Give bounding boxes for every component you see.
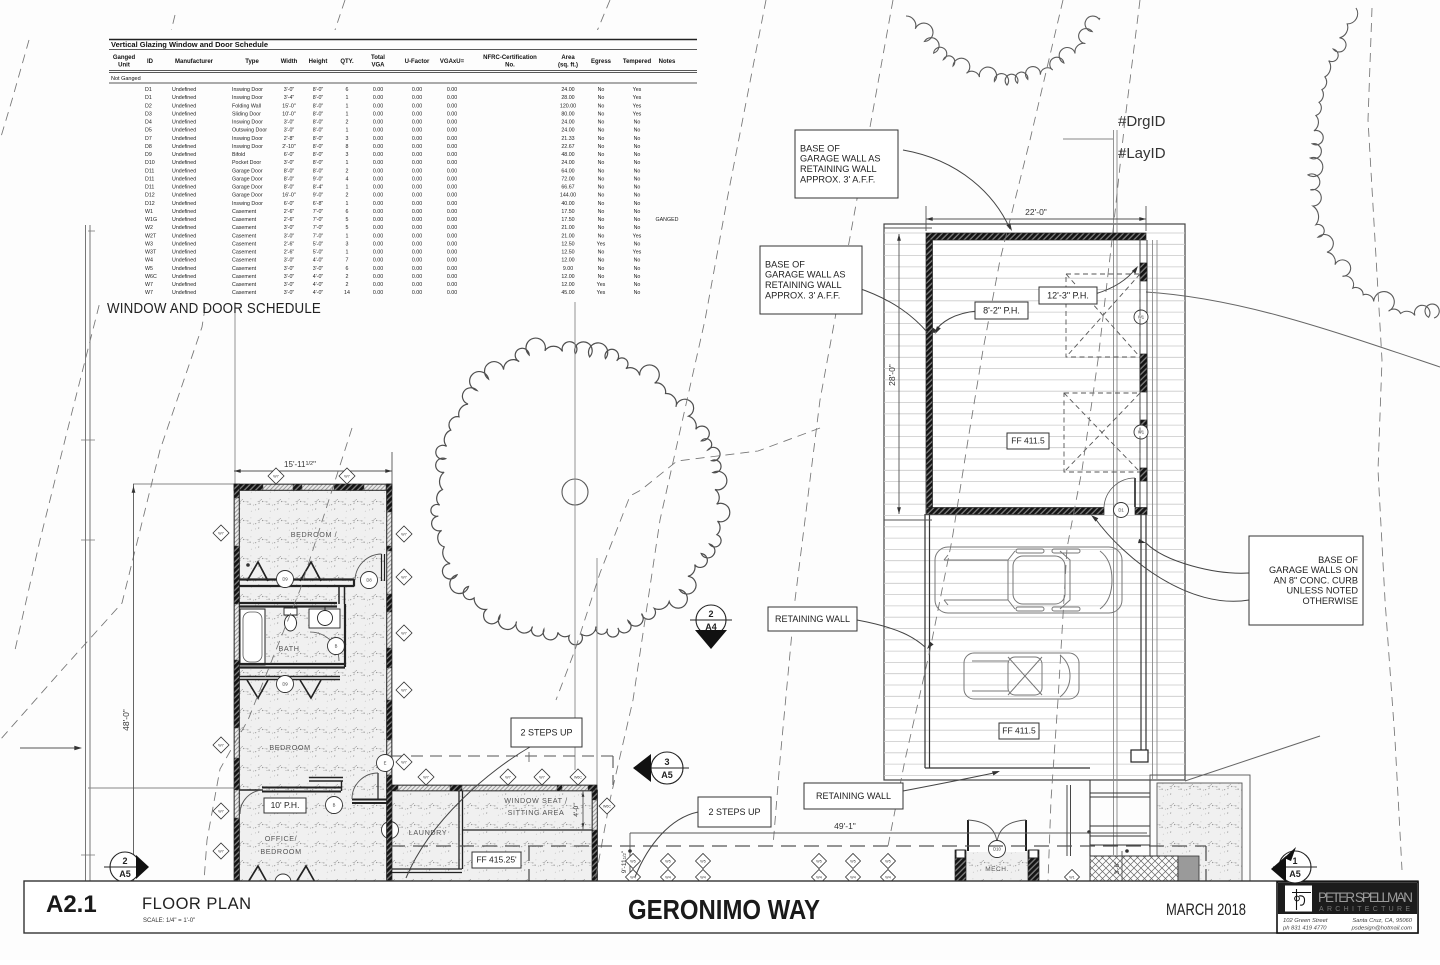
svg-text:Inswing Door: Inswing Door: [232, 87, 263, 93]
svg-text:120.00: 120.00: [560, 103, 576, 109]
svg-text:0.00: 0.00: [373, 290, 383, 296]
svg-text:BASE OF: BASE OF: [765, 259, 805, 269]
svg-text:0.00: 0.00: [447, 152, 457, 158]
svg-text:B: B: [333, 803, 336, 808]
svg-text:QTY.: QTY.: [340, 59, 354, 65]
svg-text:No: No: [598, 120, 605, 126]
svg-text:0.00: 0.00: [373, 282, 383, 288]
svg-text:7'-0": 7'-0": [313, 233, 324, 239]
svg-text:OTHERWISE: OTHERWISE: [1303, 596, 1358, 606]
svg-text:Casement: Casement: [232, 258, 257, 264]
svg-text:0.00: 0.00: [373, 136, 383, 142]
svg-text:48.00: 48.00: [561, 152, 574, 158]
svg-text:ph 831 419 4770: ph 831 419 4770: [1282, 926, 1327, 932]
svg-text:D3: D3: [145, 111, 152, 117]
svg-text:12.50: 12.50: [561, 250, 574, 256]
svg-text:WINDOW AND DOOR SCHEDULE: WINDOW AND DOOR SCHEDULE: [107, 301, 321, 317]
svg-text:0.00: 0.00: [412, 274, 422, 280]
svg-text:No: No: [598, 266, 605, 272]
svg-text:0.00: 0.00: [412, 176, 422, 182]
svg-text:Yes: Yes: [633, 233, 642, 239]
svg-text:0.00: 0.00: [412, 193, 422, 199]
svg-text:W7: W7: [344, 474, 349, 478]
svg-text:W7: W7: [539, 775, 544, 779]
svg-text:W7: W7: [401, 532, 406, 536]
svg-text:Height: Height: [309, 59, 328, 65]
svg-text:144.00: 144.00: [560, 193, 576, 199]
svg-text:OFFICE/: OFFICE/: [265, 834, 298, 843]
svg-text:ID: ID: [147, 59, 154, 65]
svg-text:No: No: [598, 185, 605, 191]
svg-text:Undefined: Undefined: [172, 201, 196, 207]
svg-text:0.00: 0.00: [447, 128, 457, 134]
svg-text:Type: Type: [245, 59, 259, 65]
svg-text:8'-0": 8'-0": [313, 136, 324, 142]
svg-text:No: No: [634, 258, 641, 264]
svg-text:No: No: [598, 111, 605, 117]
svg-text:GARAGE WALL AS: GARAGE WALL AS: [765, 270, 846, 280]
svg-text:Undefined: Undefined: [172, 209, 196, 215]
svg-text:No: No: [634, 152, 641, 158]
svg-text:W4: W4: [885, 875, 890, 879]
svg-text:Undefined: Undefined: [172, 168, 196, 174]
svg-text:0.00: 0.00: [447, 87, 457, 93]
svg-text:Unit: Unit: [118, 63, 130, 69]
svg-text:No: No: [598, 87, 605, 93]
svg-text:17.50: 17.50: [561, 209, 574, 215]
svg-text:Folding Wall: Folding Wall: [232, 103, 261, 109]
svg-text:64.00: 64.00: [561, 168, 574, 174]
svg-text:0.00: 0.00: [373, 274, 383, 280]
svg-text:0.00: 0.00: [373, 201, 383, 207]
svg-text:0.00: 0.00: [447, 274, 457, 280]
svg-text:No: No: [634, 120, 641, 126]
svg-text:W1: W1: [1069, 875, 1074, 879]
svg-text:W5: W5: [665, 859, 670, 863]
svg-text:Undefined: Undefined: [172, 290, 196, 296]
svg-text:D11: D11: [145, 185, 154, 191]
svg-text:17.50: 17.50: [561, 217, 574, 223]
svg-text:W4: W4: [665, 875, 670, 879]
svg-text:No: No: [598, 209, 605, 215]
svg-text:2: 2: [346, 282, 349, 288]
svg-text:Yes: Yes: [633, 111, 642, 117]
svg-text:No: No: [634, 160, 641, 166]
svg-text:Yes: Yes: [633, 95, 642, 101]
svg-text:FLOOR PLAN: FLOOR PLAN: [142, 895, 252, 913]
svg-text:PETER SPELLMAN: PETER SPELLMAN: [1318, 890, 1413, 905]
svg-text:0.00: 0.00: [412, 266, 422, 272]
svg-text:Undefined: Undefined: [172, 144, 196, 150]
svg-text:0.00: 0.00: [447, 209, 457, 215]
svg-text:1: 1: [346, 160, 349, 166]
svg-text:0.00: 0.00: [447, 250, 457, 256]
svg-text:24.00: 24.00: [561, 160, 574, 166]
svg-text:D4: D4: [145, 120, 152, 126]
svg-text:3: 3: [346, 152, 349, 158]
svg-text:3'-0": 3'-0": [284, 258, 295, 264]
svg-text:SCALE: 1/4" = 1'-0": SCALE: 1/4" = 1'-0": [143, 918, 195, 924]
svg-text:15'-0": 15'-0": [282, 103, 296, 109]
svg-text:GARAGE WALL AS: GARAGE WALL AS: [800, 154, 881, 164]
svg-text:W7: W7: [401, 760, 406, 764]
svg-text:Tempered: Tempered: [623, 59, 652, 65]
svg-text:49'-1": 49'-1": [834, 821, 856, 831]
svg-text:Casement: Casement: [232, 209, 257, 215]
svg-text:W4: W4: [850, 875, 855, 879]
svg-text:0.00: 0.00: [412, 217, 422, 223]
svg-text:Undefined: Undefined: [172, 152, 196, 158]
svg-text:APPROX. 3' A.F.F.: APPROX. 3' A.F.F.: [765, 290, 840, 300]
svg-text:MECH.: MECH.: [985, 866, 1008, 873]
svg-text:Undefined: Undefined: [172, 87, 196, 93]
svg-text:8'-0": 8'-0": [284, 185, 295, 191]
svg-text:psdesign@hotmail.com: psdesign@hotmail.com: [1351, 926, 1413, 932]
svg-text:4'-0": 4'-0": [573, 803, 580, 817]
svg-text:W7: W7: [505, 775, 510, 779]
svg-text:0.00: 0.00: [373, 103, 383, 109]
svg-text:Yes: Yes: [597, 282, 606, 288]
svg-text:Undefined: Undefined: [172, 193, 196, 199]
svg-text:D9: D9: [145, 152, 152, 158]
svg-text:No: No: [634, 136, 641, 142]
svg-text:No: No: [598, 95, 605, 101]
svg-text:Casement: Casement: [232, 250, 257, 256]
svg-text:0.00: 0.00: [412, 152, 422, 158]
svg-text:5'-0": 5'-0": [313, 242, 324, 248]
svg-text:Undefined: Undefined: [172, 128, 196, 134]
svg-text:0.00: 0.00: [373, 168, 383, 174]
svg-text:2 STEPS UP: 2 STEPS UP: [708, 807, 760, 817]
svg-text:9'-0": 9'-0": [313, 193, 324, 199]
svg-text:0.00: 0.00: [412, 87, 422, 93]
svg-text:No: No: [634, 290, 641, 296]
svg-text:12.00: 12.00: [561, 258, 574, 264]
svg-text:W2T: W2T: [145, 233, 157, 239]
svg-text:Santa Cruz, CA, 95060: Santa Cruz, CA, 95060: [1352, 918, 1412, 924]
svg-text:Casement: Casement: [232, 274, 257, 280]
svg-text:No: No: [634, 209, 641, 215]
svg-text:Casement: Casement: [232, 242, 257, 248]
svg-text:0.00: 0.00: [373, 144, 383, 150]
svg-text:3'-0": 3'-0": [284, 290, 295, 296]
svg-text:0.00: 0.00: [412, 95, 422, 101]
svg-text:No: No: [634, 217, 641, 223]
svg-text:Undefined: Undefined: [172, 176, 196, 182]
svg-text:W4: W4: [145, 258, 153, 264]
svg-text:Undefined: Undefined: [172, 233, 196, 239]
svg-text:Width: Width: [281, 59, 298, 65]
svg-text:Undefined: Undefined: [172, 95, 196, 101]
svg-text:3'-0": 3'-0": [284, 282, 295, 288]
svg-text:0.00: 0.00: [373, 95, 383, 101]
svg-text:24.00: 24.00: [561, 87, 574, 93]
svg-text:No: No: [598, 258, 605, 264]
svg-text:0.00: 0.00: [412, 225, 422, 231]
svg-text:2'-6": 2'-6": [284, 242, 295, 248]
svg-text:0.00: 0.00: [412, 111, 422, 117]
svg-text:0.00: 0.00: [447, 242, 457, 248]
svg-text:8'-0": 8'-0": [284, 176, 295, 182]
svg-text:Ganged: Ganged: [113, 55, 136, 61]
svg-text:D1: D1: [1118, 508, 1124, 513]
svg-text:45.00: 45.00: [561, 290, 574, 296]
svg-text:A5: A5: [1289, 869, 1301, 879]
svg-text:2'-6": 2'-6": [284, 250, 295, 256]
svg-text:D7: D7: [145, 136, 152, 142]
svg-text:GERONIMO WAY: GERONIMO WAY: [628, 894, 820, 925]
svg-text:FF 411.5: FF 411.5: [1011, 436, 1045, 446]
svg-text:B: B: [335, 644, 338, 649]
svg-text:0.00: 0.00: [447, 282, 457, 288]
svg-text:Undefined: Undefined: [172, 266, 196, 272]
svg-text:W7: W7: [401, 688, 406, 692]
svg-text:VGAxU=: VGAxU=: [440, 59, 465, 65]
svg-text:0.00: 0.00: [447, 168, 457, 174]
svg-text:4'-0": 4'-0": [313, 282, 324, 288]
svg-text:3: 3: [664, 757, 669, 767]
svg-text:Casement: Casement: [232, 266, 257, 272]
svg-text:W1G: W1G: [145, 217, 157, 223]
svg-text:4'-0": 4'-0": [313, 274, 324, 280]
svg-text:8'-2" P.H.: 8'-2" P.H.: [983, 305, 1020, 315]
svg-text:W4: W4: [630, 875, 635, 879]
svg-text:0.00: 0.00: [373, 233, 383, 239]
svg-text:No: No: [634, 193, 641, 199]
svg-text:9'-0": 9'-0": [313, 176, 324, 182]
svg-text:3'-0": 3'-0": [284, 160, 295, 166]
svg-text:3'-0": 3'-0": [284, 120, 295, 126]
svg-text:5: 5: [346, 217, 349, 223]
svg-text:3: 3: [346, 136, 349, 142]
svg-text:Inswing Door: Inswing Door: [232, 201, 263, 207]
svg-text:W7: W7: [218, 743, 223, 747]
svg-text:0.00: 0.00: [447, 160, 457, 166]
svg-text:Area: Area: [561, 55, 575, 61]
svg-text:0.00: 0.00: [373, 128, 383, 134]
svg-text:0.00: 0.00: [412, 185, 422, 191]
svg-text:80.00: 80.00: [561, 111, 574, 117]
svg-text:7'-0": 7'-0": [313, 209, 324, 215]
svg-text:No: No: [634, 201, 641, 207]
svg-text:GARAGE WALLS ON: GARAGE WALLS ON: [1269, 565, 1358, 575]
svg-text:MARCH 2018: MARCH 2018: [1166, 901, 1246, 919]
svg-text:No: No: [598, 201, 605, 207]
svg-text:2'-6": 2'-6": [284, 217, 295, 223]
svg-text:W5: W5: [700, 859, 705, 863]
svg-text:No: No: [598, 152, 605, 158]
svg-text:Inswing Door: Inswing Door: [232, 95, 263, 101]
svg-text:0.00: 0.00: [373, 160, 383, 166]
svg-text:8'-0": 8'-0": [313, 144, 324, 150]
svg-text:Undefined: Undefined: [172, 136, 196, 142]
svg-text:W5: W5: [850, 859, 855, 863]
svg-text:0.00: 0.00: [447, 266, 457, 272]
svg-text:Undefined: Undefined: [172, 282, 196, 288]
svg-text:0.00: 0.00: [373, 209, 383, 215]
svg-text:Yes: Yes: [597, 242, 606, 248]
svg-text:Yes: Yes: [633, 87, 642, 93]
svg-text:8'-0": 8'-0": [313, 168, 324, 174]
svg-text:Pocket Door: Pocket Door: [232, 160, 261, 166]
svg-text:0.00: 0.00: [412, 250, 422, 256]
svg-text:7'-0": 7'-0": [313, 217, 324, 223]
svg-text:Undefined: Undefined: [172, 120, 196, 126]
svg-text:0.00: 0.00: [373, 152, 383, 158]
svg-text:(sq. ft.): (sq. ft.): [558, 63, 578, 69]
svg-text:Sliding Door: Sliding Door: [232, 111, 261, 117]
svg-text:BATH: BATH: [278, 644, 299, 653]
svg-text:No: No: [598, 136, 605, 142]
svg-text:0.00: 0.00: [447, 225, 457, 231]
svg-text:D1: D1: [145, 95, 152, 101]
svg-text:Casement: Casement: [232, 282, 257, 288]
svg-text:No: No: [634, 225, 641, 231]
svg-text:GANGED: GANGED: [656, 217, 679, 223]
svg-text:40.00: 40.00: [561, 201, 574, 207]
svg-text:8'-0": 8'-0": [313, 95, 324, 101]
svg-text:0.00: 0.00: [447, 258, 457, 264]
svg-text:Total: Total: [371, 55, 385, 61]
svg-text:W7: W7: [218, 849, 223, 853]
svg-text:No: No: [598, 160, 605, 166]
svg-text:Undefined: Undefined: [172, 217, 196, 223]
svg-text:28.00: 28.00: [561, 95, 574, 101]
svg-text:D9: D9: [282, 682, 288, 687]
svg-text:LAUNDRY: LAUNDRY: [409, 828, 447, 837]
svg-text:Garage Door: Garage Door: [232, 185, 263, 191]
svg-text:No: No: [598, 250, 605, 256]
svg-text:0.00: 0.00: [412, 103, 422, 109]
svg-text:1: 1: [346, 128, 349, 134]
svg-text:7'-0": 7'-0": [313, 225, 324, 231]
svg-text:0.00: 0.00: [412, 128, 422, 134]
svg-text:48'-0": 48'-0": [121, 709, 131, 731]
svg-text:A2.1: A2.1: [46, 891, 97, 918]
svg-text:0.00: 0.00: [373, 242, 383, 248]
svg-text:3'-0": 3'-0": [284, 87, 295, 93]
svg-text:0.00: 0.00: [447, 136, 457, 142]
svg-text:No: No: [634, 144, 641, 150]
svg-text:0.00: 0.00: [447, 193, 457, 199]
svg-text:8'-0": 8'-0": [313, 128, 324, 134]
svg-text:12.50: 12.50: [561, 242, 574, 248]
svg-text:No: No: [634, 168, 641, 174]
svg-text:BEDROOM: BEDROOM: [260, 847, 301, 856]
svg-text:AN 8" CONC. CURB: AN 8" CONC. CURB: [1274, 575, 1358, 585]
svg-text:3'-0": 3'-0": [284, 266, 295, 272]
svg-text:W6C: W6C: [574, 775, 582, 779]
svg-text:22.67: 22.67: [561, 144, 574, 150]
svg-text:1: 1: [346, 233, 349, 239]
svg-text:W7: W7: [218, 809, 223, 813]
svg-text:2: 2: [708, 609, 713, 619]
svg-text:16'-0": 16'-0": [282, 193, 296, 199]
svg-text:W1: W1: [1138, 315, 1145, 320]
svg-text:0.00: 0.00: [447, 95, 457, 101]
svg-text:No: No: [598, 193, 605, 199]
svg-text:W6C: W6C: [145, 274, 157, 280]
svg-text:No: No: [598, 274, 605, 280]
svg-text:W3: W3: [145, 242, 153, 248]
svg-text:Inswing Door: Inswing Door: [232, 136, 263, 142]
svg-text:UNLESS NOTED: UNLESS NOTED: [1287, 586, 1359, 596]
svg-text:0.00: 0.00: [373, 217, 383, 223]
svg-text:8'-0": 8'-0": [313, 160, 324, 166]
svg-text:No: No: [598, 103, 605, 109]
svg-text:0.00: 0.00: [412, 209, 422, 215]
svg-text:D11: D11: [145, 176, 154, 182]
svg-text:Casement: Casement: [232, 290, 257, 296]
svg-text:W4: W4: [816, 875, 821, 879]
svg-text:28'-0": 28'-0": [887, 364, 897, 386]
svg-text:No: No: [598, 217, 605, 223]
svg-text:E: E: [384, 761, 387, 766]
svg-text:8'-0": 8'-0": [313, 120, 324, 126]
svg-text:6'-0": 6'-0": [284, 201, 295, 207]
svg-text:Notes: Notes: [659, 59, 676, 65]
svg-text:8'-0": 8'-0": [313, 103, 324, 109]
svg-text:Yes: Yes: [597, 290, 606, 296]
svg-text:#DrgID: #DrgID: [1118, 113, 1166, 130]
svg-text:WINDOW SEAT /: WINDOW SEAT /: [504, 796, 567, 805]
svg-text:5: 5: [346, 225, 349, 231]
svg-text:1: 1: [346, 103, 349, 109]
svg-text:6: 6: [346, 209, 349, 215]
svg-text:0.00: 0.00: [412, 201, 422, 207]
svg-text:W5: W5: [145, 266, 153, 272]
svg-text:Undefined: Undefined: [172, 225, 196, 231]
svg-text:RETAINING WALL: RETAINING WALL: [816, 791, 891, 801]
svg-text:1: 1: [346, 185, 349, 191]
svg-text:Manufacturer: Manufacturer: [175, 59, 214, 65]
svg-text:D8: D8: [366, 578, 372, 583]
svg-text:Inswing Door: Inswing Door: [232, 144, 263, 150]
svg-text:D5: D5: [145, 128, 152, 134]
svg-text:No: No: [634, 128, 641, 134]
svg-text:2'-6": 2'-6": [284, 209, 295, 215]
svg-text:Not Ganged: Not Ganged: [111, 76, 141, 82]
svg-text:2'-10": 2'-10": [282, 144, 296, 150]
svg-text:66.67: 66.67: [561, 185, 574, 191]
svg-text:W7: W7: [218, 531, 223, 535]
svg-text:4: 4: [346, 176, 349, 182]
svg-text:D8: D8: [145, 144, 152, 150]
svg-text:W3T: W3T: [145, 250, 157, 256]
svg-text:0.00: 0.00: [412, 242, 422, 248]
svg-text:8'-0": 8'-0": [313, 87, 324, 93]
svg-text:6: 6: [346, 266, 349, 272]
svg-text:1: 1: [346, 111, 349, 117]
svg-text:3: 3: [346, 242, 349, 248]
svg-text:0.00: 0.00: [373, 176, 383, 182]
svg-text:2: 2: [122, 856, 127, 866]
svg-text:0.00: 0.00: [412, 233, 422, 239]
svg-text:D1: D1: [145, 87, 152, 93]
svg-text:Outswing Door: Outswing Door: [232, 128, 267, 134]
svg-text:Garage Door: Garage Door: [232, 168, 263, 174]
svg-text:No: No: [598, 168, 605, 174]
svg-text:6'-8": 6'-8": [313, 201, 324, 207]
svg-text:4'-0": 4'-0": [313, 258, 324, 264]
svg-text:W5: W5: [630, 859, 635, 863]
svg-text:3'-0": 3'-0": [284, 274, 295, 280]
svg-text:No: No: [598, 225, 605, 231]
svg-text:2: 2: [346, 120, 349, 126]
svg-text:A5: A5: [119, 869, 131, 879]
svg-text:Undefined: Undefined: [172, 160, 196, 166]
svg-text:0.00: 0.00: [447, 103, 457, 109]
